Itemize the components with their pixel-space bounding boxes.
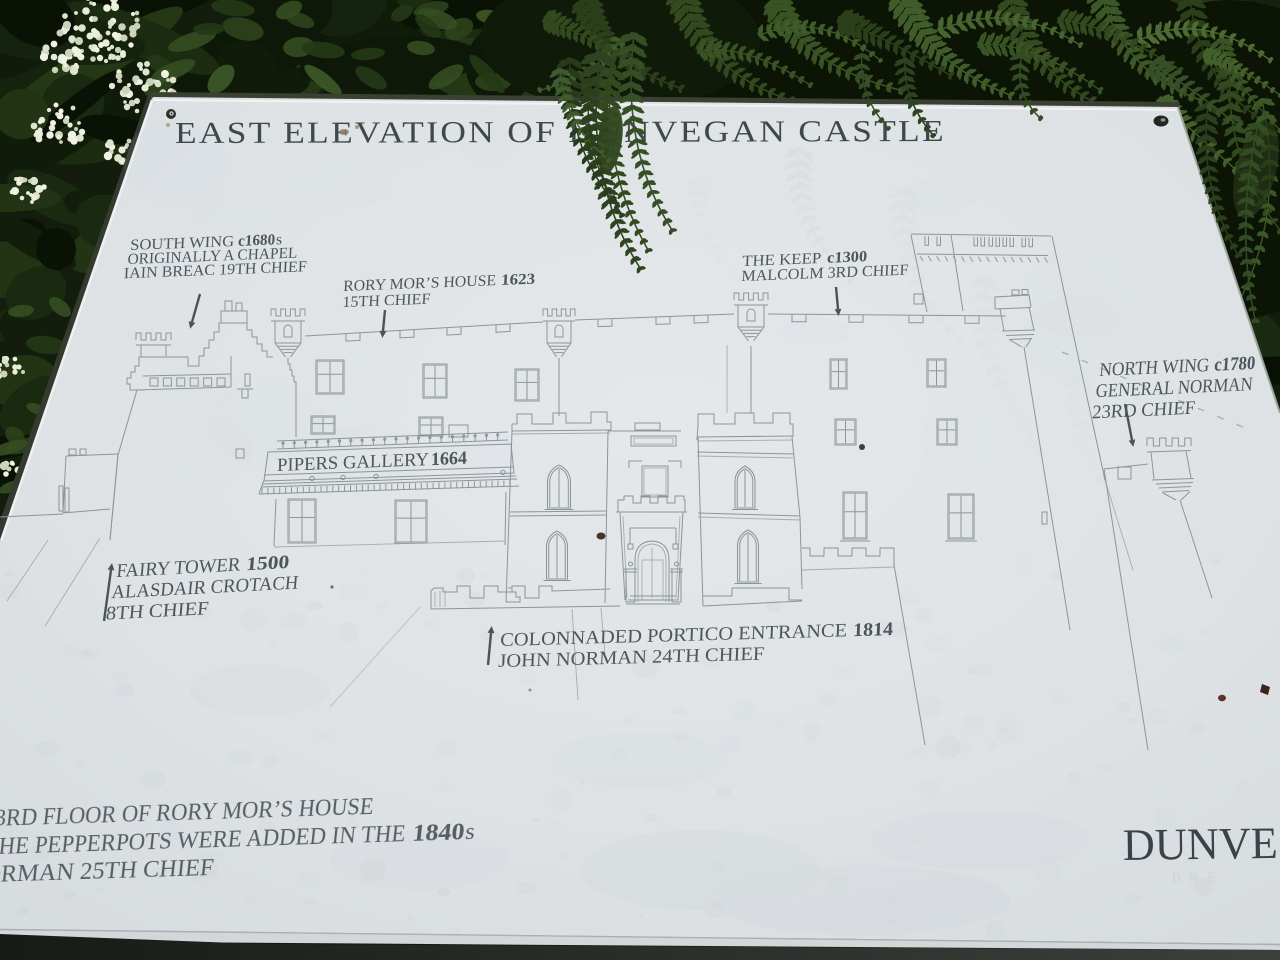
svg-text:1500: 1500 — [245, 552, 290, 575]
svg-text:DUNVE: DUNVE — [1122, 818, 1278, 870]
svg-text:1623: 1623 — [501, 271, 536, 289]
svg-text:EAST ELEVATION OF DUNVEGAN CAS: EAST ELEVATION OF DUNVEGAN CASTLE — [175, 114, 946, 150]
svg-text:1840: 1840 — [411, 819, 466, 847]
svg-text:1664: 1664 — [431, 449, 467, 470]
svg-text:15TH CHIEF: 15TH CHIEF — [342, 291, 431, 311]
svg-text:B & E: B & E — [1172, 870, 1218, 886]
svg-text:1814: 1814 — [853, 619, 894, 641]
svg-text:c1780: c1780 — [1213, 353, 1256, 376]
